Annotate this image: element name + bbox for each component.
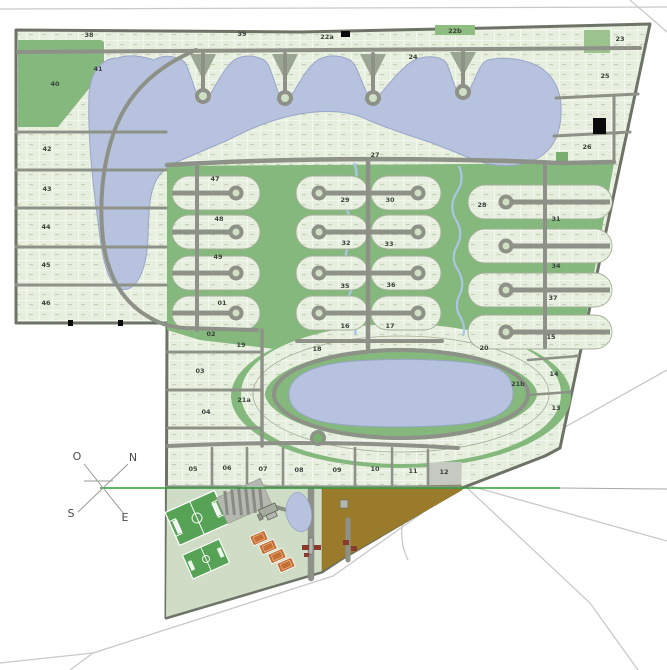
section-label-05: 05 [188, 465, 198, 473]
section-label-10: 10 [370, 465, 380, 473]
section-label-19: 19 [236, 341, 246, 349]
cul-de-sac-cluster [368, 296, 441, 330]
section-label-22b: 22b [448, 27, 462, 35]
cul-de-sac-cluster [368, 215, 441, 249]
section-label-44: 44 [41, 223, 51, 231]
sold-lot-small [341, 31, 350, 37]
section-label-21a: 21a [237, 396, 250, 404]
section-label-41: 41 [93, 65, 103, 73]
section-label-07: 07 [258, 465, 267, 473]
cul-de-sac-cluster [368, 256, 441, 290]
site-plan-map: ONSE 383922a22b2324252640414243444546474… [0, 0, 667, 670]
section-label-45: 45 [41, 261, 51, 269]
section-label-08: 08 [294, 466, 304, 474]
section-label-02: 02 [206, 330, 215, 338]
section-label-21b: 21b [511, 380, 525, 388]
compass-rose [78, 464, 128, 514]
section-label-48: 48 [214, 215, 224, 223]
section-label-46: 46 [41, 299, 51, 307]
section-label-34: 34 [551, 262, 561, 270]
section-label-09: 09 [332, 466, 342, 474]
compass-letter-O: O [73, 450, 82, 463]
external-road-west [0, 653, 93, 663]
cul-de-sac-cluster [468, 315, 612, 349]
section-label-42: 42 [42, 145, 51, 153]
section-label-06: 06 [222, 464, 232, 472]
lower-lake [289, 359, 513, 426]
section-label-15: 15 [546, 333, 556, 341]
cul-de-sac-cluster [368, 176, 441, 210]
section-label-04: 04 [201, 408, 211, 416]
compass-letter-S: S [68, 507, 75, 520]
cul-de-sac-cluster [296, 296, 368, 330]
cul-de-sac-cluster [468, 229, 612, 263]
roundabout [310, 430, 326, 446]
section-label-29: 29 [340, 196, 350, 204]
section-label-17: 17 [385, 322, 394, 330]
section-label-49: 49 [213, 253, 223, 261]
boundary-marker [118, 320, 123, 326]
compass-letter-N: N [129, 451, 137, 464]
section-label-37: 37 [548, 294, 557, 302]
compass-letter-E: E [122, 511, 129, 524]
section-label-11: 11 [408, 467, 418, 475]
survey-line-gray [560, 488, 667, 489]
brown-field [322, 485, 462, 571]
section-label-12: 12 [439, 468, 448, 476]
section-label-24: 24 [408, 53, 418, 61]
section-label-32: 32 [341, 239, 350, 247]
section-label-47: 47 [210, 175, 219, 183]
section-label-38: 38 [84, 31, 94, 39]
section-label-14: 14 [549, 370, 559, 378]
section-label-01: 01 [217, 299, 227, 307]
section-label-33: 33 [384, 240, 393, 248]
section-label-43: 43 [42, 185, 51, 193]
section-label-30: 30 [385, 196, 395, 204]
cul-de-sac-cluster [172, 256, 260, 290]
section-label-27: 27 [370, 151, 379, 159]
external-road-top [0, 7, 667, 9]
cul-de-sac-cluster [468, 185, 612, 219]
section-label-26: 26 [582, 143, 592, 151]
boundary-marker [68, 320, 73, 326]
lake-cul-de-sac [277, 90, 293, 106]
lake-cul-de-sac [365, 90, 381, 106]
cul-de-sac-cluster [296, 256, 368, 290]
section-label-18: 18 [312, 345, 322, 353]
cul-de-sac-cluster [172, 296, 260, 330]
section-label-31: 31 [551, 215, 561, 223]
section-label-16: 16 [340, 322, 350, 330]
lake-cul-de-sac [195, 88, 211, 104]
cul-de-sac-cluster [468, 273, 612, 307]
section-label-25: 25 [600, 72, 610, 80]
section-label-03: 03 [195, 367, 204, 375]
lake-cul-de-sac [455, 84, 471, 100]
external-road-southeast [463, 484, 638, 670]
section-label-39: 39 [237, 30, 247, 38]
section-label-35: 35 [340, 282, 350, 290]
cul-de-sac-cluster [296, 176, 368, 210]
section-label-22a: 22a [320, 33, 333, 41]
section-label-36: 36 [386, 281, 396, 289]
sold-lot-large [593, 118, 606, 134]
site-plan-page: ONSE 383922a22b2324252640414243444546474… [0, 0, 667, 670]
section-label-13: 13 [551, 404, 560, 412]
section-label-20: 20 [479, 344, 489, 352]
section-label-28: 28 [477, 201, 487, 209]
section-label-40: 40 [50, 80, 60, 88]
section-label-23: 23 [615, 35, 624, 43]
cul-de-sac-cluster [296, 215, 368, 249]
